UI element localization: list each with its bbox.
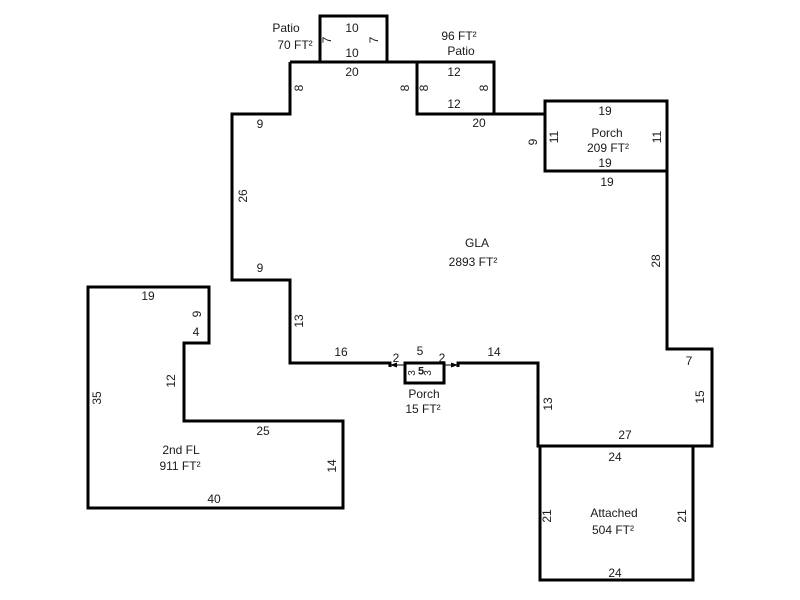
secondfl-dim-right: 14 bbox=[326, 459, 338, 472]
secondfl-dim-mid: 25 bbox=[256, 425, 269, 437]
attached-dim-bottom: 24 bbox=[608, 567, 621, 579]
gla-dim-right-jog: 7 bbox=[686, 355, 693, 367]
gla-dim-bottom-right-wall: 27 bbox=[618, 429, 631, 441]
gla-dim-step-right: 8 bbox=[399, 85, 411, 92]
patio96-dim-right: 8 bbox=[478, 85, 490, 92]
attached-area: 504 FT² bbox=[592, 524, 634, 536]
patio70-title: Patio bbox=[272, 22, 299, 34]
gla-dim-right-lower: 15 bbox=[694, 390, 706, 403]
porch15-offset-right: 2 bbox=[439, 352, 446, 364]
gla-area: 2893 FT² bbox=[449, 256, 498, 268]
secondfl-dim-top: 19 bbox=[141, 290, 154, 302]
patio96-dim-top: 12 bbox=[447, 66, 460, 78]
porch15-area: 15 FT² bbox=[405, 403, 440, 415]
attached-title: Attached bbox=[590, 507, 637, 519]
porch15-offset-left: 2 bbox=[393, 352, 400, 364]
patio96-area: 96 FT² bbox=[441, 30, 476, 42]
gla-title: GLA bbox=[465, 237, 489, 249]
patio70-dim-right: 7 bbox=[368, 37, 380, 44]
patio96-title: Patio bbox=[447, 45, 474, 57]
gla-dim-left-lower: 13 bbox=[293, 314, 305, 327]
attached-dim-right: 21 bbox=[676, 509, 688, 522]
attached-dim-top: 24 bbox=[608, 451, 621, 463]
gla-dim-bottom-mid-wall: 14 bbox=[487, 346, 500, 358]
gla-dim-top-porch-wall: 19 bbox=[600, 176, 613, 188]
gla-dim-right-upper: 28 bbox=[650, 254, 662, 267]
secondfl-dim-notch-top: 4 bbox=[193, 326, 200, 338]
patio96-dim-left: 8 bbox=[418, 85, 430, 92]
gla-dim-top-left-wall: 20 bbox=[345, 66, 358, 78]
porch15-title: Porch bbox=[408, 388, 439, 400]
porch209-title: Porch bbox=[591, 127, 622, 139]
gla-dim-step-left-bottom: 9 bbox=[257, 262, 264, 274]
porch15-dim-top: 5 bbox=[417, 345, 424, 357]
dimension-labels-layer: Patio70 FT²1077102096 FT²Patio1288812208… bbox=[0, 0, 800, 600]
gla-dim-step-left-top: 9 bbox=[257, 118, 264, 130]
patio70-area: 70 FT² bbox=[277, 39, 312, 51]
patio96-dim-bottom: 12 bbox=[447, 98, 460, 110]
attached-dim-left: 21 bbox=[541, 509, 553, 522]
gla-dim-left-upper: 8 bbox=[293, 85, 305, 92]
porch209-dim-right: 11 bbox=[651, 131, 663, 143]
porch209-dim-left: 11 bbox=[548, 131, 560, 143]
gla-dim-porch-left: 9 bbox=[527, 139, 539, 146]
gla-dim-top-right-wall: 20 bbox=[472, 117, 485, 129]
gla-dim-right-inner: 13 bbox=[542, 397, 554, 410]
porch209-dim-top: 19 bbox=[598, 105, 611, 117]
porch15-dim-right: 3 bbox=[424, 370, 434, 376]
patio70-dim-top: 10 bbox=[345, 22, 358, 34]
secondfl-dim-bottom: 40 bbox=[207, 493, 220, 505]
patio70-dim-left: 7 bbox=[321, 37, 333, 44]
gla-dim-left-mid: 26 bbox=[237, 189, 249, 202]
floor-plan-sketch: Patio70 FT²1077102096 FT²Patio1288812208… bbox=[0, 0, 800, 600]
secondfl-title: 2nd FL bbox=[162, 444, 199, 456]
secondfl-dim-notch-left: 12 bbox=[165, 374, 177, 387]
porch15-dim-left: 3 bbox=[408, 370, 418, 376]
porch209-dim-bottom: 19 bbox=[598, 157, 611, 169]
secondfl-dim-left: 35 bbox=[91, 391, 103, 404]
secondfl-dim-notch-right: 9 bbox=[191, 311, 203, 318]
gla-dim-bottom-left-wall: 16 bbox=[334, 346, 347, 358]
patio70-dim-bottom: 10 bbox=[345, 47, 358, 59]
porch209-area: 209 FT² bbox=[587, 142, 629, 154]
secondfl-area: 911 FT² bbox=[159, 460, 200, 472]
